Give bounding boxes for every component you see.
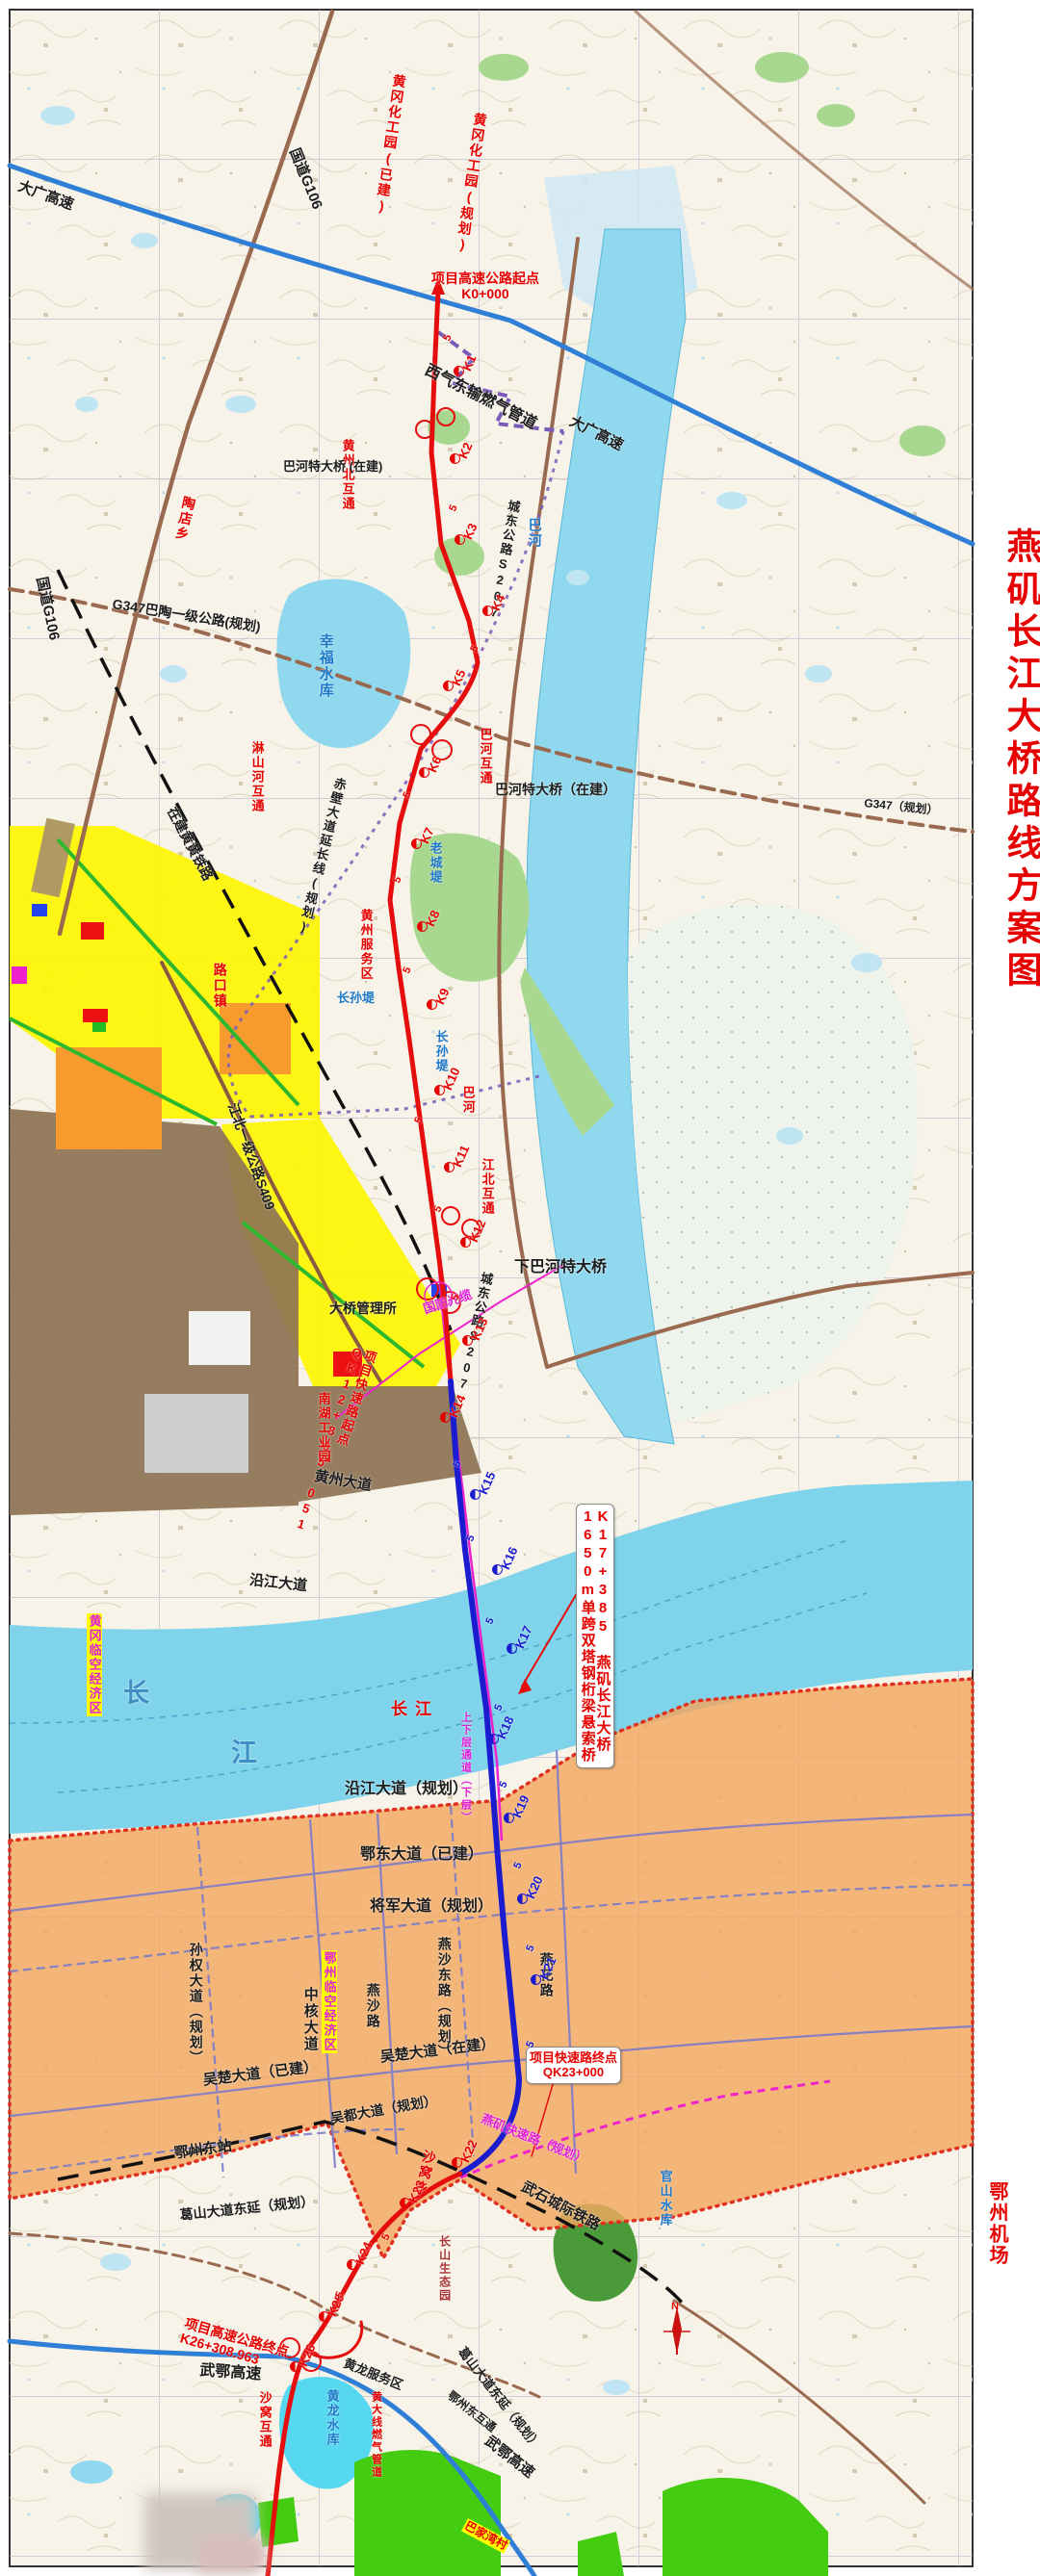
airport-green-a bbox=[354, 2450, 501, 2576]
blurred-patch-2 bbox=[197, 2537, 265, 2572]
map-title: 燕矶长江大桥路线方案图 bbox=[976, 528, 1038, 993]
map-page: 大广高速大广高速国道G106国道G106黄冈化工园(已建)黄冈化工园(规划)项目… bbox=[0, 0, 1040, 2576]
map-canvas bbox=[0, 0, 1040, 2576]
